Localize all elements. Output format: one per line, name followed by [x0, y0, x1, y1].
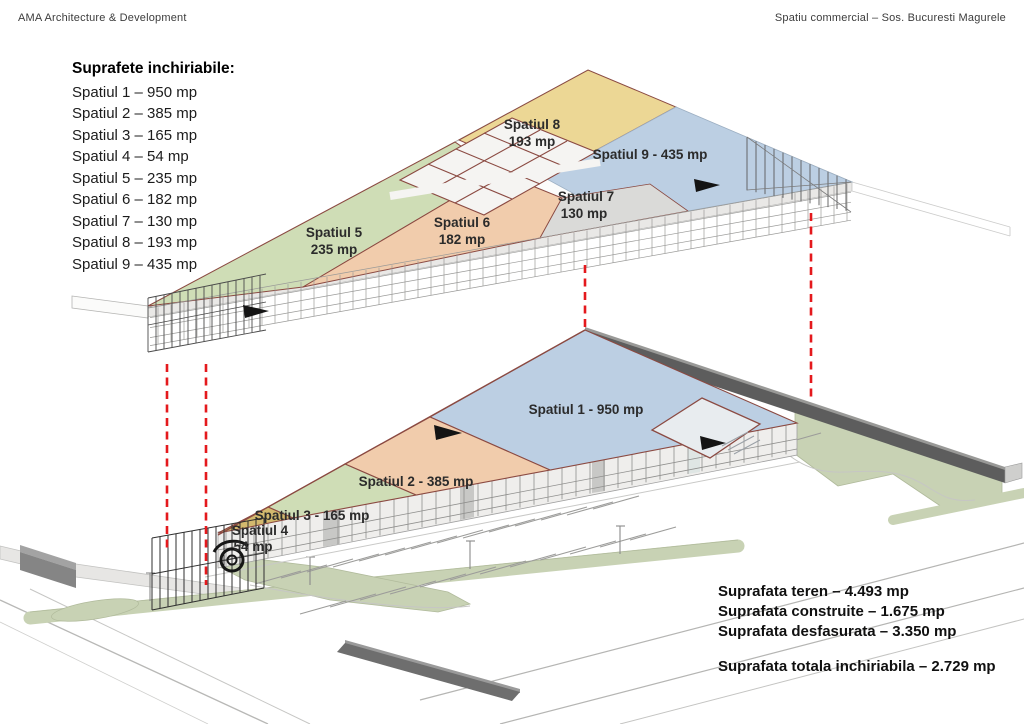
upper-floor [72, 70, 1010, 352]
zone-label-spatiul-7-area: 130 mp [561, 206, 608, 221]
zone-label-spatiul-3: Spatiul 3 - 165 mp [255, 508, 370, 523]
area-summary: Suprafata teren – 4.493 mp Suprafata con… [718, 582, 996, 677]
zone-label-spatiul-4: Spatiul 4 [232, 523, 289, 538]
summary-line: Suprafata construite – 1.675 mp [718, 602, 996, 622]
summary-total: Suprafata totala inchiriabila – 2.729 mp [718, 657, 996, 677]
zone-label-spatiul-5-area: 235 mp [311, 242, 358, 257]
zone-label-spatiul-6: Spatiul 6 [434, 215, 491, 230]
zone-label-spatiul-8: Spatiul 8 [504, 117, 561, 132]
zone-label-spatiul-1: Spatiul 1 - 950 mp [529, 402, 644, 417]
zone-label-spatiul-5: Spatiul 5 [306, 225, 363, 240]
zone-label-spatiul-7: Spatiul 7 [558, 189, 614, 204]
zone-label-spatiul-6-area: 182 mp [439, 232, 486, 247]
zone-label-spatiul-2: Spatiul 2 - 385 mp [359, 474, 474, 489]
zone-label-spatiul-4-area: 54 mp [233, 539, 272, 554]
summary-line: Suprafata desfasurata – 3.350 mp [718, 622, 996, 642]
zone-label-spatiul-9: Spatiul 9 - 435 mp [593, 147, 708, 162]
zone-label-spatiul-8-area: 193 mp [509, 134, 556, 149]
summary-line: Suprafata teren – 4.493 mp [718, 582, 996, 602]
architectural-plan-page: AMA Architecture & Development Spatiu co… [0, 0, 1024, 724]
